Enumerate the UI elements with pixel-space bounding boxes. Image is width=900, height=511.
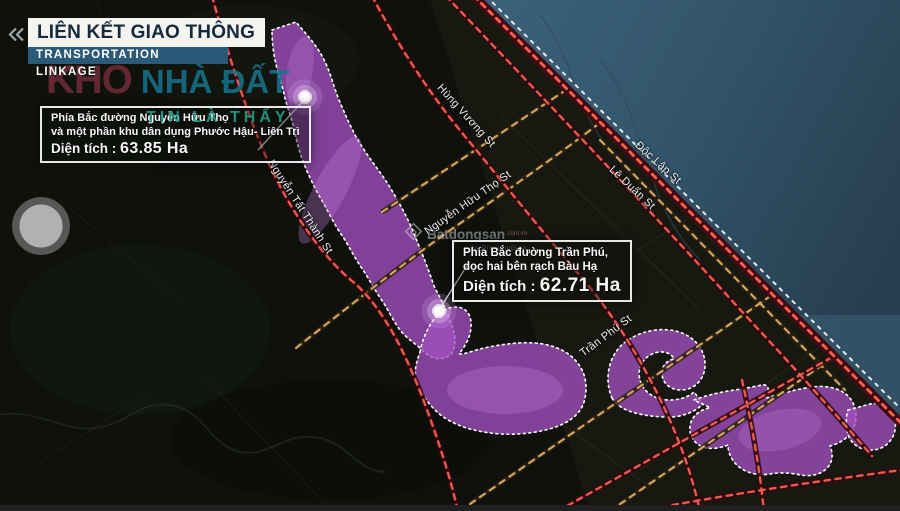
watermark-tagline: TIN LÀ THẤY [146,109,290,127]
area-label: Diện tích : [463,278,536,295]
area-value: 62.71 Ha [540,275,621,296]
area-label: Diện tích : [51,141,116,156]
bottom-edge-strip [0,505,900,511]
page-title: LIÊN KẾT GIAO THÔNG [28,18,265,47]
logo-circle-watermark [12,197,70,255]
info-line: dọc hai bên rạch Bàu Hạ [463,260,621,274]
title-block: LIÊN KẾT GIAO THÔNG TRANSPORTATION LINKA… [28,18,265,64]
info-line: và một phần khu dân dụng Phước Hậu- Liên… [51,126,300,140]
map-canvas[interactable]: Nguyễn Tất Thành St Hùng Vương St Nguyễn… [0,0,900,511]
house-diamond-icon [404,222,423,246]
info-line: Phía Bắc đường Trần Phú, [463,246,621,260]
area-value: 63.85 Ha [120,140,188,157]
watermark-word-nhadat: NHÀ ĐẤT [141,63,289,100]
page-subtitle: TRANSPORTATION LINKAGE [28,47,228,64]
double-chevron-icon [8,27,25,47]
watermark-domain: .com.vn [506,231,527,237]
info-box-central-zone: Phía Bắc đường Trần Phú, dọc hai bên rạc… [452,240,632,302]
